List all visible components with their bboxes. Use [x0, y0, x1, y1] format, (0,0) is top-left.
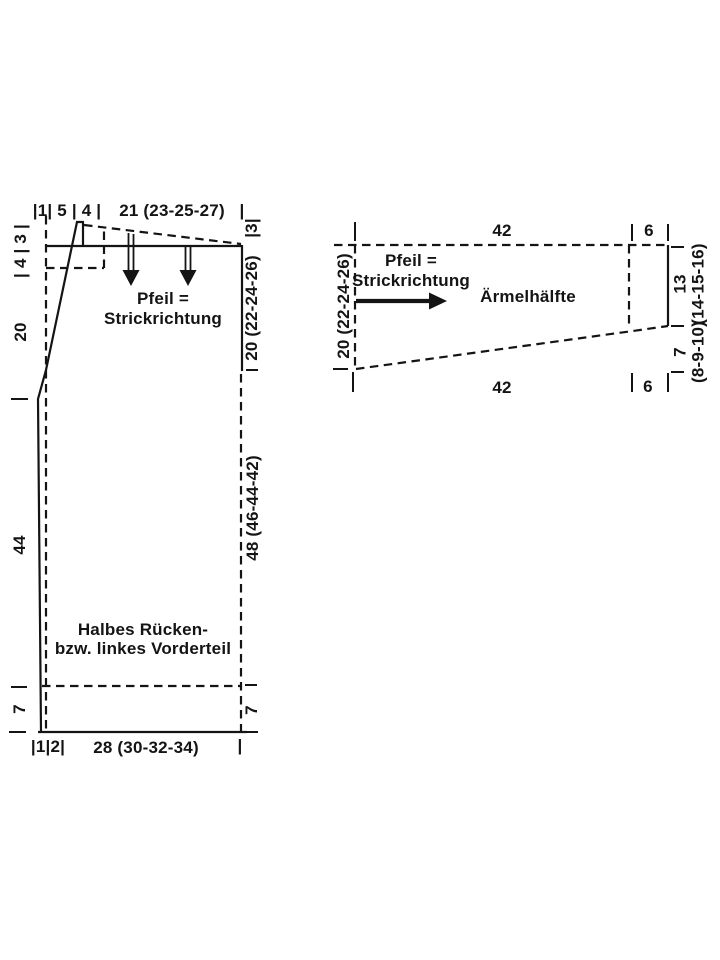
sleeve-top-width-measure: 42 [492, 221, 511, 241]
back-top-width-measure: 21 (23-25-27) [119, 201, 225, 221]
sleeve-underarm-slope-dashed [356, 326, 668, 369]
sleeve-right-lower-value: 7 [672, 321, 690, 383]
sleeve-left-height-measure: 20 (22-24-26) [334, 253, 354, 359]
back-piece-caption: Halbes Rücken- bzw. linkes Vorderteil [55, 620, 231, 658]
sleeve-right-upper-value: 13 [672, 243, 690, 324]
arrow-head-down-icon [123, 270, 140, 286]
arrow-shaft [186, 247, 191, 270]
sleeve-bottom-width-measure: 42 [492, 378, 511, 398]
back-bottom-end-tick: | [238, 736, 243, 756]
sleeve-knit-direction-arrow [356, 293, 447, 310]
back-top-segment-measures: |1| 5 | 4 | [33, 201, 101, 221]
sleeve-bottom-cap-measure: 6 [643, 377, 653, 397]
back-bottom-width-measure: 28 (30-32-34) [93, 738, 199, 758]
sleeve-direction-note-line2: Strickrichtung [352, 271, 470, 291]
back-right-lower-measure: 48 (46-44-42) [243, 455, 263, 561]
sleeve-right-upper-sizes: (14-15-16) [689, 243, 707, 324]
sleeve-top-cap-measure: 6 [644, 221, 654, 241]
back-direction-note-line1: Pfeil = [104, 289, 222, 309]
back-direction-note: Pfeil = Strickrichtung [104, 289, 222, 329]
back-piece-caption-line2: bzw. linkes Vorderteil [55, 639, 231, 658]
sleeve-direction-note-line1: Pfeil = [352, 251, 470, 271]
arrow-shaft [129, 233, 134, 270]
sleeve-tick-marks [333, 222, 684, 392]
back-shoulder-slope-dashed [84, 225, 241, 244]
back-direction-note-line2: Strickrichtung [104, 309, 222, 329]
back-piece-tick-marks [9, 370, 258, 732]
back-left-length-measure: 44 [10, 535, 30, 554]
sleeve-piece-caption: Ärmelhälfte [480, 287, 576, 307]
back-bottom-segment-measures: |1|2| [31, 737, 65, 757]
back-left-hem-measure: 7 [10, 704, 30, 714]
back-knit-direction-arrow-1 [123, 233, 140, 286]
sleeve-right-lower-sizes: (8-9-10) [689, 321, 707, 383]
back-piece-caption-line1: Halbes Rücken- [55, 620, 231, 639]
sleeve-direction-note: Pfeil = Strickrichtung [352, 251, 470, 291]
sleeve-right-upper-measure: 13 (14-15-16) [672, 243, 707, 324]
pattern-schematic: |1| 5 | 4 | 21 (23-25-27) | | 4 | 3 | 20… [0, 0, 720, 960]
back-knit-direction-arrow-2 [180, 247, 197, 286]
schematic-linework [0, 0, 720, 960]
back-right-hem-measure: 7 [242, 705, 262, 715]
sleeve-right-lower-measure: 7 (8-9-10) [672, 321, 707, 383]
back-left-shoulder-measures: | 4 | 3 | [11, 224, 31, 278]
back-left-armhole-measure: 20 [11, 322, 31, 341]
back-right-upper-measure: 20 (22-24-26) [242, 255, 262, 361]
arrow-head-right-icon [429, 293, 447, 310]
arrow-head-down-icon [180, 270, 197, 286]
back-right-shoulder-drop-measure: |3| [242, 218, 262, 238]
